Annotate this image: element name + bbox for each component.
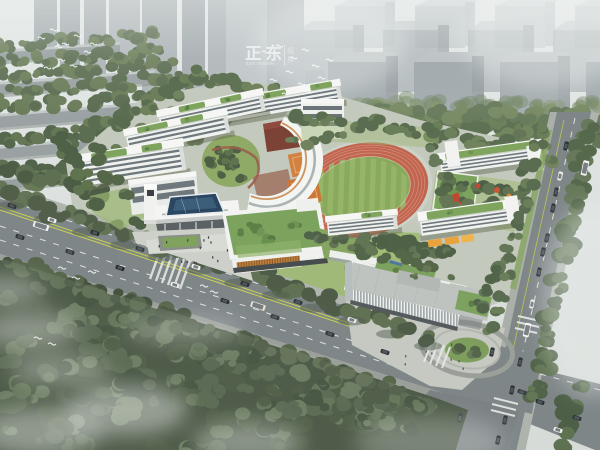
- svg-text:正东: 正东: [245, 43, 286, 63]
- svg-text:EST VISION: EST VISION: [246, 61, 274, 66]
- svg-text:视: 视: [287, 46, 294, 55]
- svg-text:界: 界: [287, 56, 294, 64]
